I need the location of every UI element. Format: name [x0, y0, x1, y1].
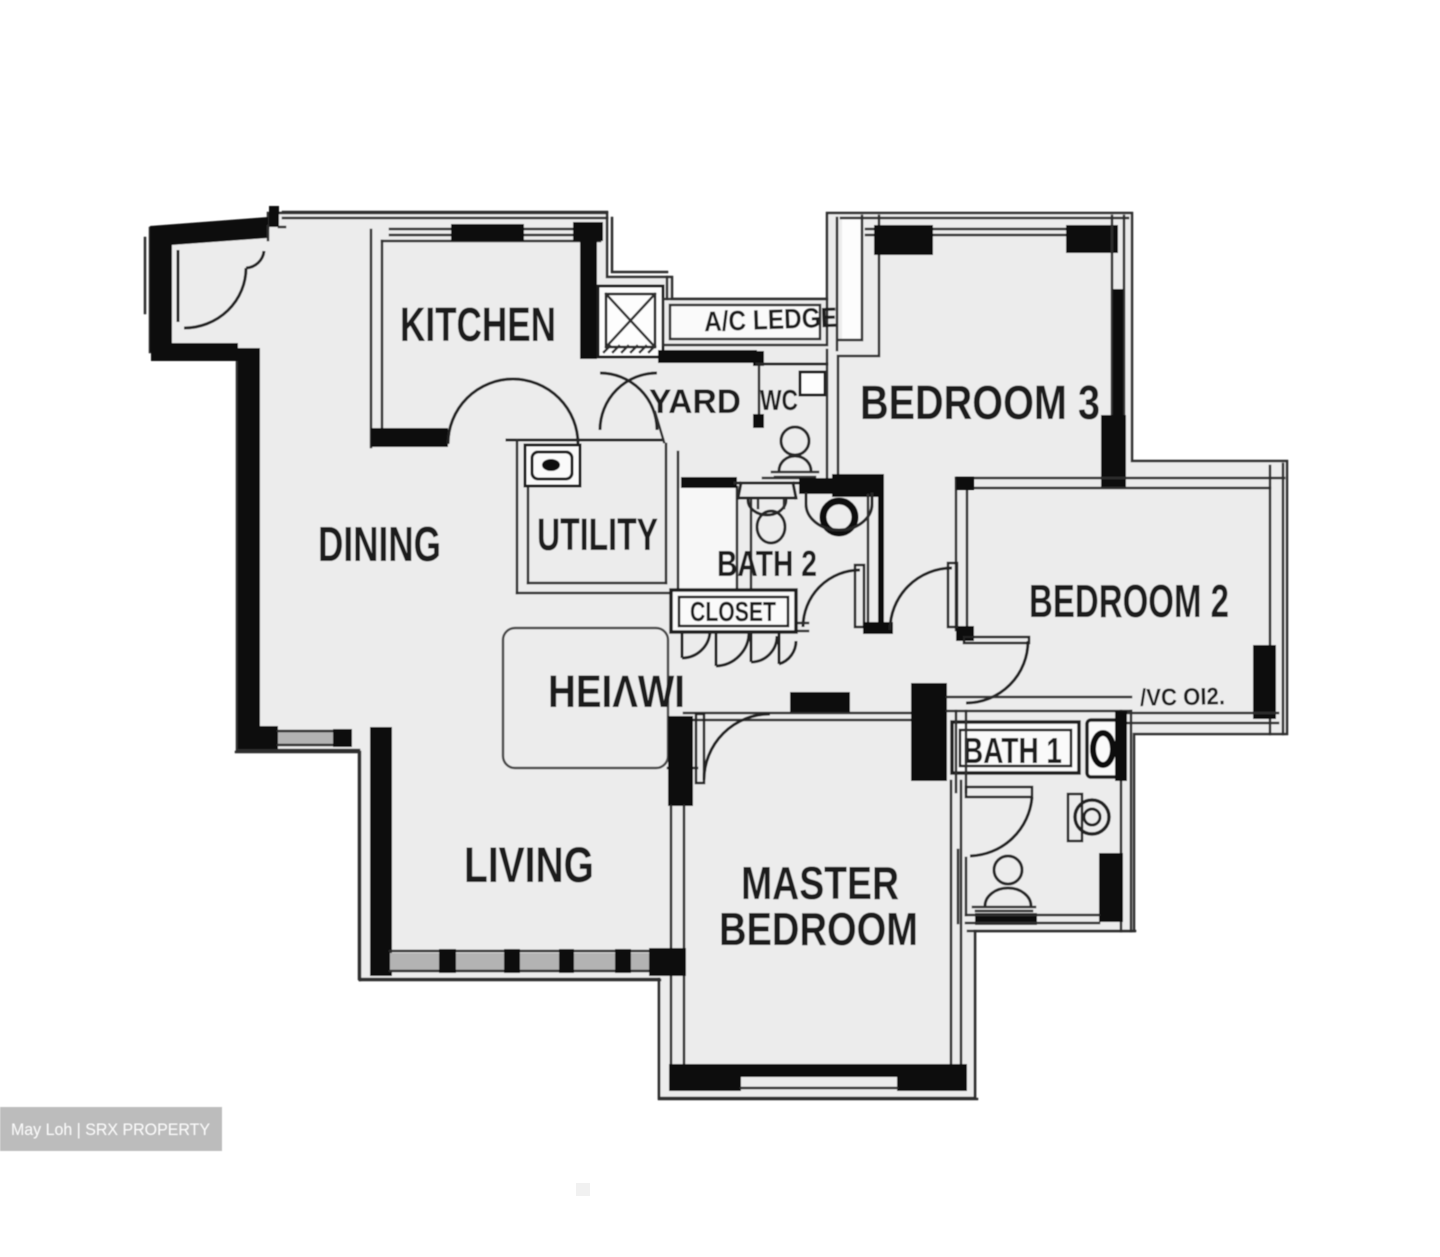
- svg-text:KITCHEN: KITCHEN: [400, 299, 556, 352]
- svg-text:LIVING: LIVING: [464, 837, 594, 893]
- svg-text:BATH 2: BATH 2: [717, 543, 817, 584]
- svg-text:BEDROOM 2: BEDROOM 2: [1029, 575, 1229, 627]
- svg-text:WC: WC: [760, 385, 798, 417]
- svg-text:BEDROOM 3: BEDROOM 3: [860, 377, 1100, 430]
- svg-text:UTILITY: UTILITY: [537, 509, 658, 560]
- svg-text:BATH 1: BATH 1: [963, 730, 1062, 771]
- svg-text:A/C LEDGE: A/C LEDGE: [703, 302, 837, 338]
- svg-text:HEIΛWI: HEIΛWI: [548, 666, 685, 717]
- svg-text:YARD: YARD: [649, 383, 741, 421]
- svg-text:MASTER: MASTER: [741, 857, 899, 909]
- svg-text:May Loh | SRX PROPERTY: May Loh | SRX PROPERTY: [11, 1120, 210, 1139]
- svg-text:DINING: DINING: [318, 518, 441, 572]
- svg-text:/VC OI2.: /VC OI2.: [1140, 683, 1225, 711]
- svg-text:CLOSET: CLOSET: [690, 596, 776, 627]
- svg-text:BEDROOM: BEDROOM: [719, 903, 918, 955]
